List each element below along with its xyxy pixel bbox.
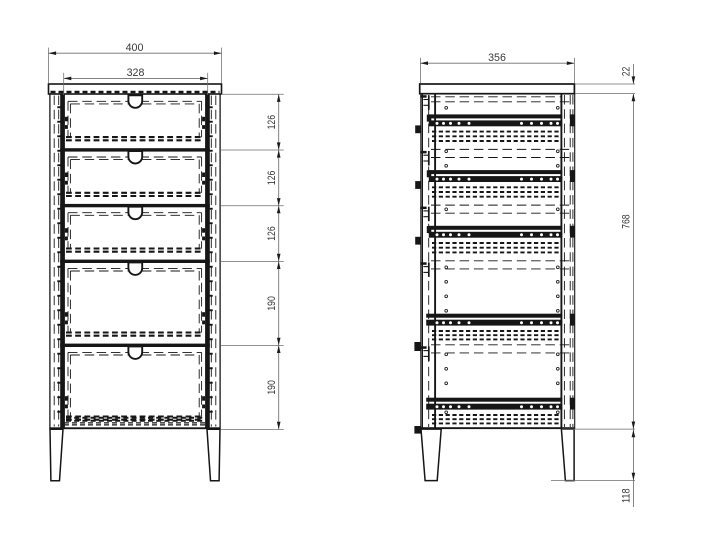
svg-text:356: 356: [488, 52, 506, 64]
svg-text:126: 126: [266, 226, 278, 241]
svg-text:328: 328: [127, 67, 145, 79]
svg-text:22: 22: [621, 67, 633, 77]
svg-text:190: 190: [266, 380, 278, 395]
svg-text:190: 190: [266, 296, 278, 311]
svg-text:118: 118: [621, 488, 633, 503]
svg-text:768: 768: [621, 214, 633, 229]
svg-text:126: 126: [266, 171, 278, 186]
svg-text:400: 400: [126, 42, 144, 54]
svg-text:126: 126: [266, 115, 278, 130]
